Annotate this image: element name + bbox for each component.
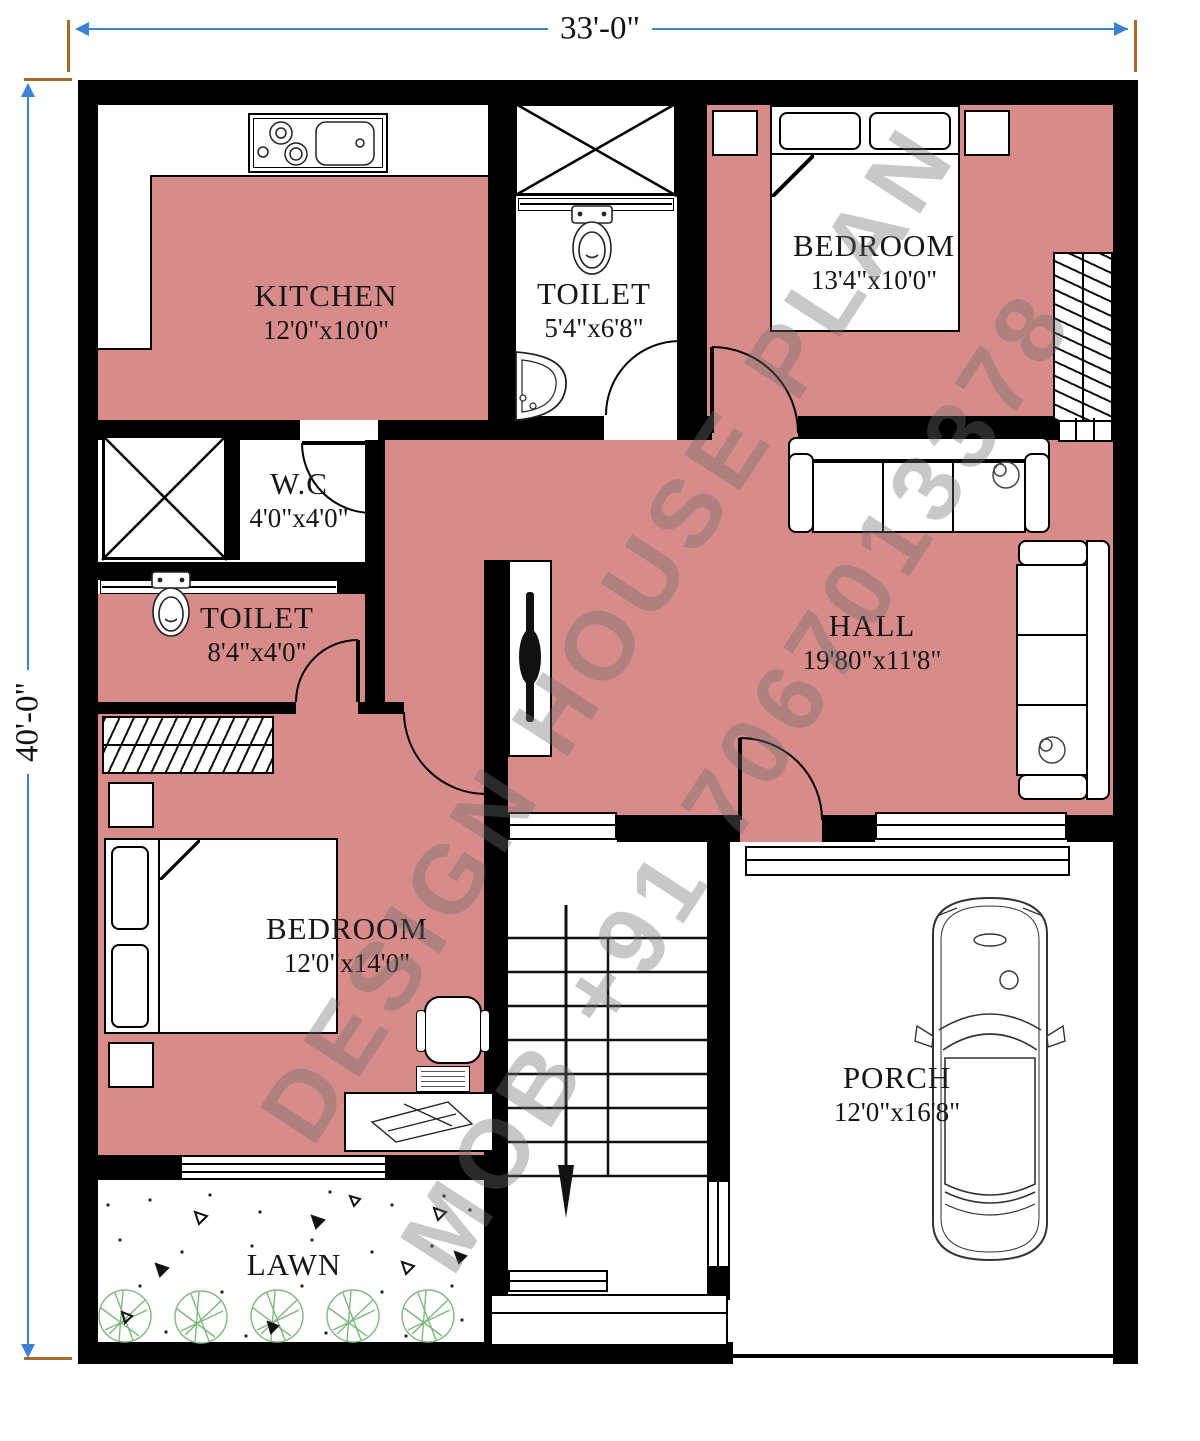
room-label-toilet-top: TOILET5'4"x6'8"	[537, 276, 651, 344]
wall-bedroom-lawn-b	[387, 1155, 484, 1180]
nightstand	[712, 110, 758, 156]
tv-unit	[508, 560, 552, 757]
sofa-arm	[1024, 453, 1050, 533]
wall-bedroom-stairs	[484, 560, 508, 1364]
dim-label-width: 33'-0"	[548, 11, 652, 48]
sliding-door-porch	[875, 812, 1067, 840]
room-label-bedroom-top: BEDROOM13'4"x10'0"	[793, 228, 955, 296]
wall-bedroom-lawn-a	[98, 1155, 180, 1180]
window-bedroom-lawn	[180, 1155, 387, 1180]
room-label-wc: W.C4'0"x4'0"	[249, 466, 348, 534]
sofa-seat	[812, 461, 1026, 533]
sofa2-seat	[1016, 564, 1088, 776]
wall-under-shaft	[98, 562, 385, 580]
pillow	[111, 944, 149, 1028]
wall-outer-left	[78, 80, 98, 1364]
kitchen-floor-l	[98, 348, 152, 420]
doorway-floor-3	[712, 416, 798, 440]
chair-arm	[480, 1010, 490, 1052]
nightstand	[108, 1042, 154, 1088]
counter-edge	[152, 175, 488, 177]
tree-icon	[99, 1290, 454, 1343]
window-stairs-top	[508, 812, 617, 840]
kitchen-sink-inner	[253, 118, 383, 168]
counter-edge	[98, 348, 152, 350]
wall-band2-a	[98, 702, 296, 714]
wall-under-shaft-patch	[338, 580, 385, 594]
room-label-kitchen: KITCHEN12'0"x10'0"	[254, 278, 397, 346]
wall-kitchen-toilet	[488, 105, 516, 440]
sofa2-arm	[1018, 774, 1088, 800]
wall-shaft-wc	[227, 435, 240, 560]
wall-band1-b	[378, 420, 516, 440]
wall-hall-bottom-c	[1067, 815, 1113, 842]
shaft-left-box	[102, 435, 227, 560]
blanket-fold	[772, 155, 814, 197]
doorway-floor-4	[740, 815, 822, 842]
staircase	[508, 905, 707, 1218]
pillow	[779, 112, 861, 150]
sofa-back	[788, 437, 1050, 461]
stairs-down-arrow-icon	[558, 1165, 574, 1218]
sofa2-back	[1086, 540, 1110, 800]
keyboard-icon	[416, 1066, 470, 1092]
floor-plan: KITCHEN12'0"x10'0" TOILET5'4"x6'8" BEDRO…	[0, 0, 1200, 1441]
wall-band1-d	[680, 416, 712, 440]
dim-arrow-down-icon	[21, 1344, 35, 1358]
dim-arrow-up-icon	[21, 83, 35, 97]
wall-hall-bottom-a	[617, 815, 740, 842]
room-label-lawn: LAWN	[247, 1247, 342, 1283]
blanket-fold	[160, 840, 200, 880]
dim-arrow-left-icon	[75, 22, 89, 36]
wall-porch-bottom-line	[733, 1354, 1115, 1358]
room-label-porch: PORCH12'0"x16'8"	[834, 1060, 960, 1128]
dim-label-height: 40'-0"	[10, 670, 47, 774]
wall-stairs-right	[707, 842, 730, 1180]
pillow	[869, 112, 951, 150]
wall-hall-bottom-b	[822, 815, 875, 842]
wall-toilet-bedroom	[677, 105, 707, 440]
shaft-top-box	[514, 103, 677, 196]
room-label-bedroom-bottom: BEDROOM12'0"x14'0"	[266, 911, 428, 979]
chair-arm	[416, 1010, 426, 1052]
wall-outer-top	[78, 80, 1138, 105]
nightstand	[964, 110, 1010, 156]
dim-tick	[67, 20, 70, 72]
pillow	[111, 846, 149, 930]
room-label-hall: HALL19'80"x11'8"	[803, 608, 942, 676]
wall-band2-b	[358, 702, 404, 714]
counter-edge	[150, 175, 152, 350]
nightstand	[108, 782, 154, 828]
room-label-toilet-middle: TOILET8'4"x4'0"	[200, 600, 314, 668]
dim-tick	[1134, 20, 1137, 72]
wall-outer-right	[1113, 80, 1138, 1364]
dim-arrow-right-icon	[1114, 22, 1128, 36]
sofa-arm	[788, 453, 814, 533]
doorway-floor-2	[404, 702, 486, 714]
sofa2-arm	[1018, 540, 1088, 566]
wall-band1-c	[516, 416, 604, 440]
doorway-floor-1	[296, 702, 358, 714]
dim-tick	[24, 78, 72, 81]
chair-icon	[424, 996, 482, 1064]
exit-step	[490, 1294, 728, 1346]
porch-entry-step	[745, 846, 1070, 876]
desk	[344, 1092, 494, 1152]
washbasin-icon	[516, 352, 566, 420]
